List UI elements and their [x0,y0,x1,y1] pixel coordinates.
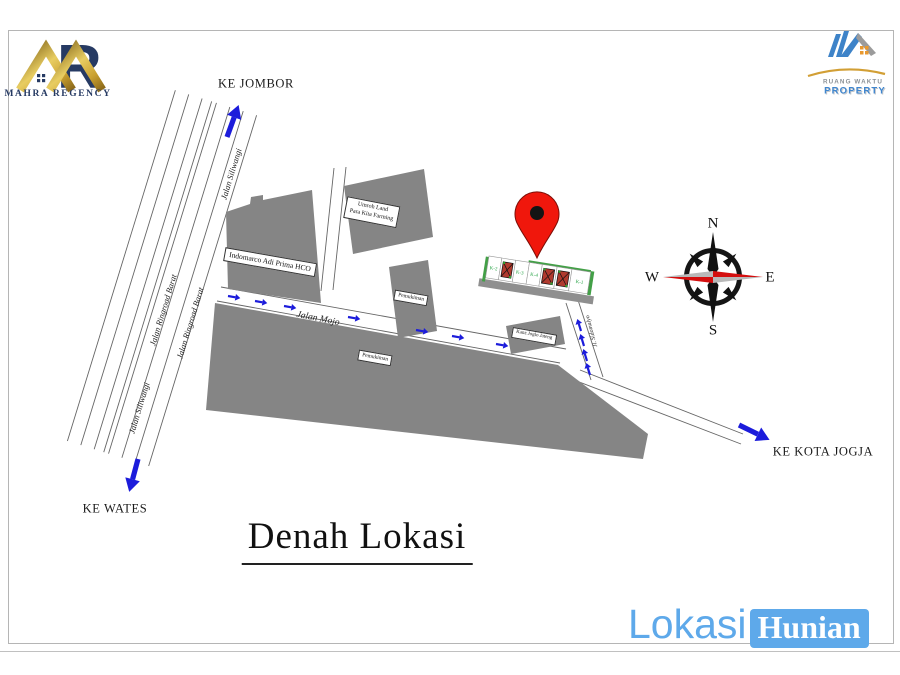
mahra-regency-wordmark: MAHRA REGENCY [4,89,111,99]
footer-word-hunian: Hunian [750,609,869,648]
site-plan-strip: K-2 K-3 K-4 K-1 [478,253,598,304]
ruang-waktu-wordmark: RUANG WAKTU [823,79,883,86]
ruang-waktu-logo [808,31,885,76]
arrow-to-wates [122,457,145,494]
compass-north-label: N [708,216,719,233]
label-ke-wates: KE WATES [83,502,148,517]
label-ke-jombor: KE JOMBOR [218,77,294,92]
map-graphics: K-2 K-3 K-4 K-1 [0,0,900,675]
compass-west-label: W [645,270,659,287]
arrow-to-kota-jogja [736,418,773,446]
location-pin-icon [515,192,559,258]
compass-east-label: E [765,270,774,287]
building-indomarco [226,190,321,303]
arrow-to-jombor [220,102,246,139]
compass-south-label: S [709,323,717,340]
gold-swoosh-icon [808,69,885,76]
ruang-waktu-property-wordmark: PROPERTY [824,86,886,97]
lokasi-hunian-logo: Lokasi Hunian [628,604,869,648]
mahra-window-icon [37,74,45,82]
label-ke-kota-jogja: KE KOTA JOGJA [773,445,874,460]
compass-rose-icon [663,232,763,322]
denah-lokasi-map: K-2 K-3 K-4 K-1 [0,0,900,675]
footer-word-lokasi: Lokasi [628,604,747,645]
page-title: Denah Lokasi [242,515,473,565]
